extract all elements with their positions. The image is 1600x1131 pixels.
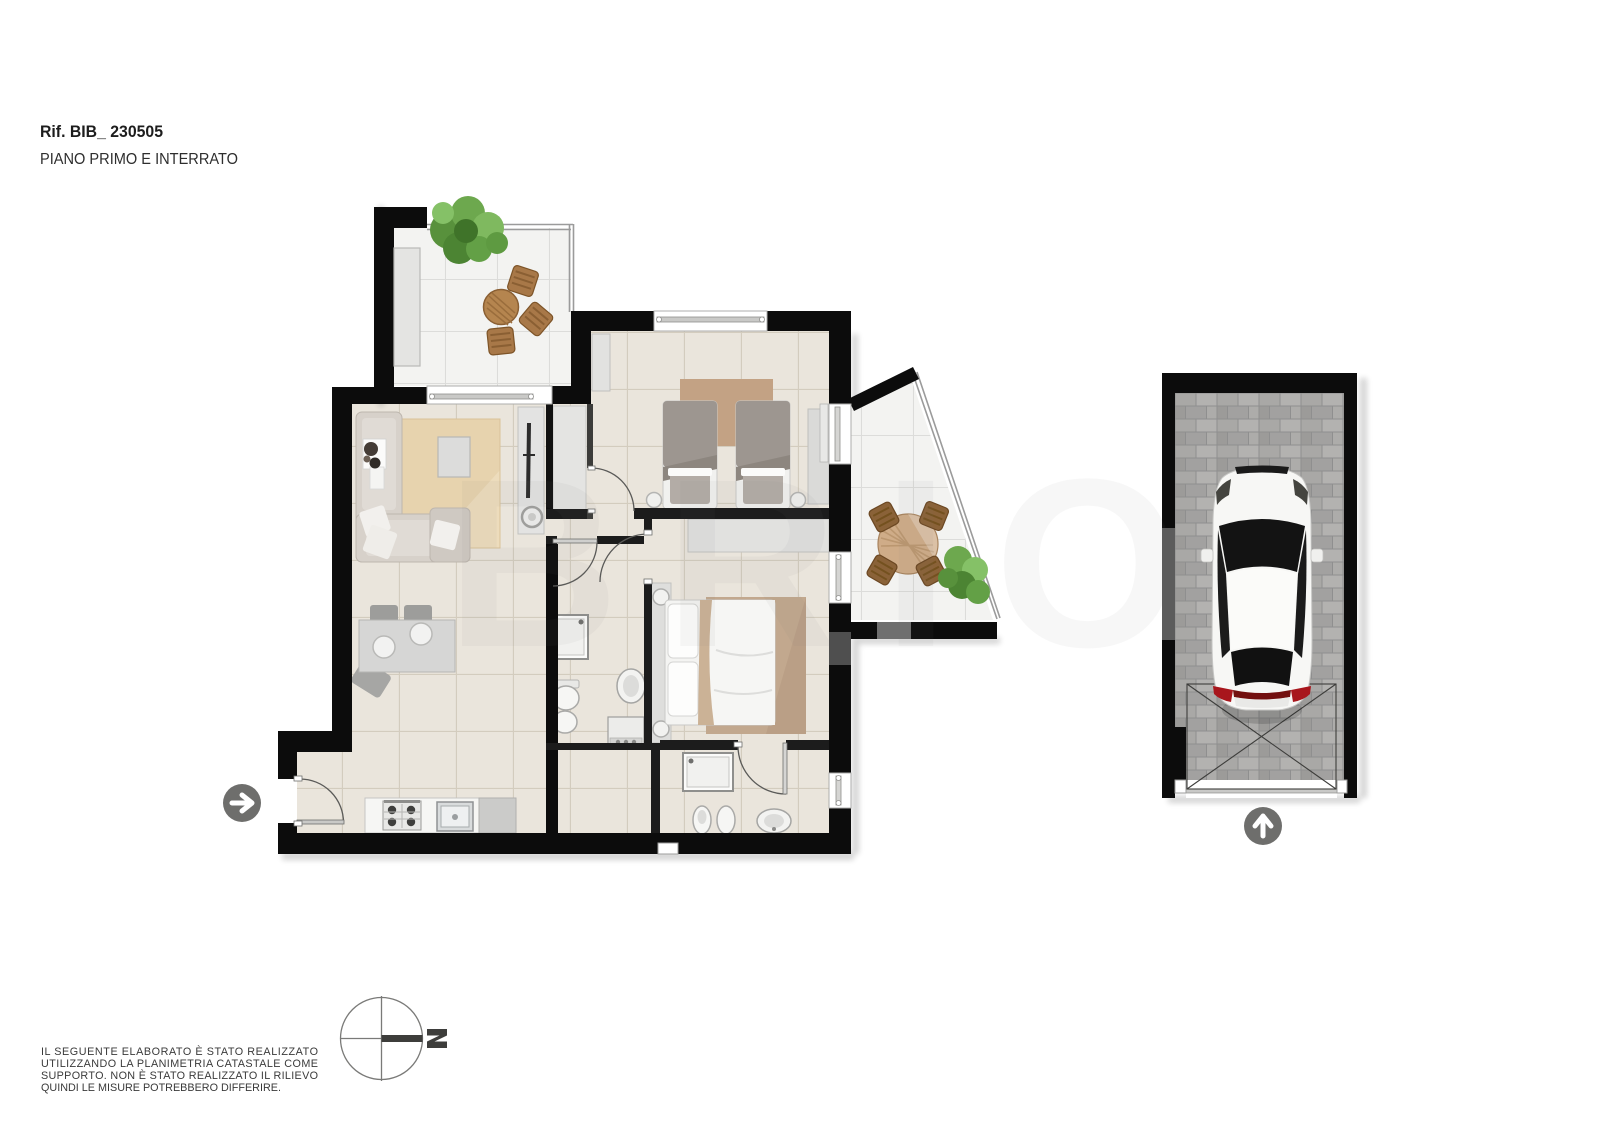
svg-text:SUPPORTO. NON È STATO REALIZZA: SUPPORTO. NON È STATO REALIZZATO IL RILI… — [41, 1069, 318, 1082]
svg-text:QUINDI LE MISURE POTREBBERO DI: QUINDI LE MISURE POTREBBERO DIFFERIRE. — [41, 1082, 281, 1094]
svg-text:IL SEGUENTE ELABORATO È STATO: IL SEGUENTE ELABORATO È STATO REALIZZATO — [41, 1045, 318, 1058]
svg-text:UTILIZZANDO LA PLANIMETRIA CAT: UTILIZZANDO LA PLANIMETRIA CATASTALE COM… — [41, 1058, 318, 1070]
svg-text:PIANO PRIMO E INTERRATO: PIANO PRIMO E INTERRATO — [40, 151, 238, 168]
svg-text:Rif. BIB_ 230505: Rif. BIB_ 230505 — [40, 123, 163, 141]
